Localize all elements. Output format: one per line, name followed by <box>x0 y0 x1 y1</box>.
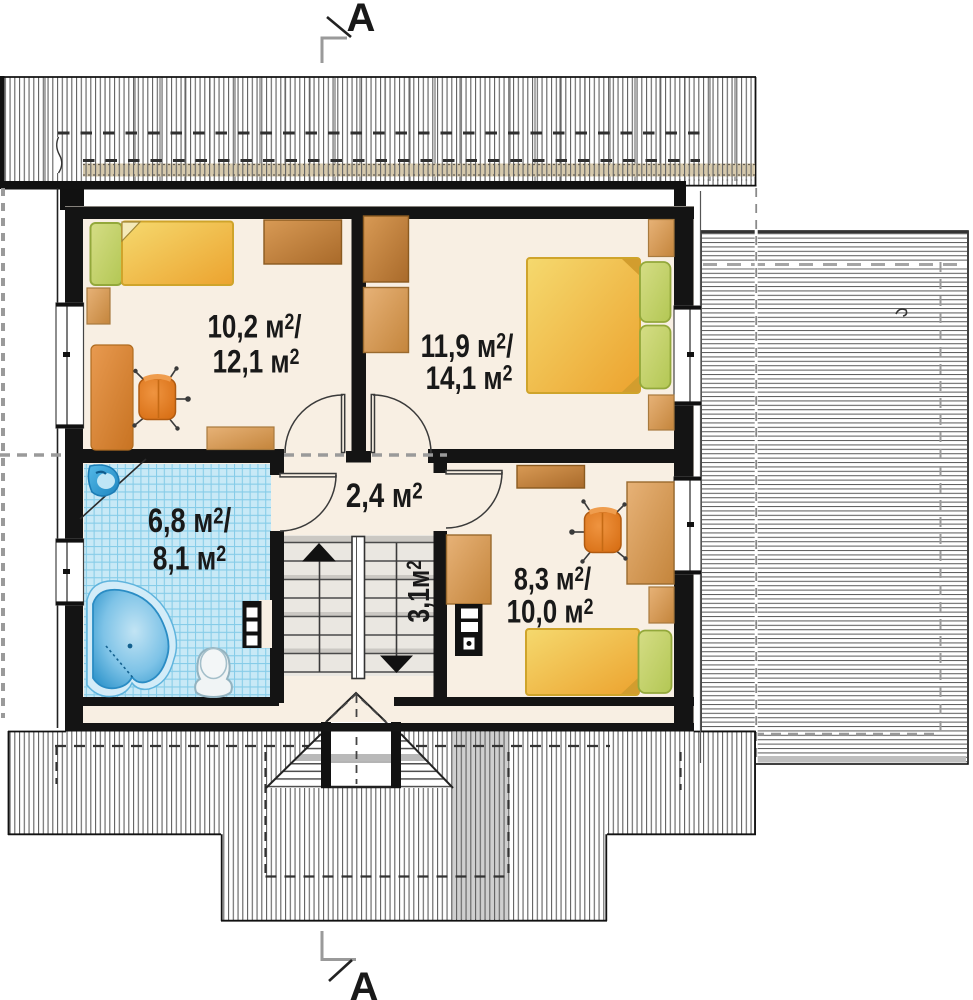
svg-text:10,0 м2: 10,0 м2 <box>507 594 594 630</box>
svg-text:A: A <box>350 965 379 1000</box>
svg-text:14,1 м2: 14,1 м2 <box>426 360 513 396</box>
svg-text:12,1 м2: 12,1 м2 <box>213 344 300 380</box>
svg-text:2,4 м2: 2,4 м2 <box>346 476 423 515</box>
svg-text:8,1 м2: 8,1 м2 <box>153 541 227 577</box>
svg-text:A: A <box>347 0 376 40</box>
